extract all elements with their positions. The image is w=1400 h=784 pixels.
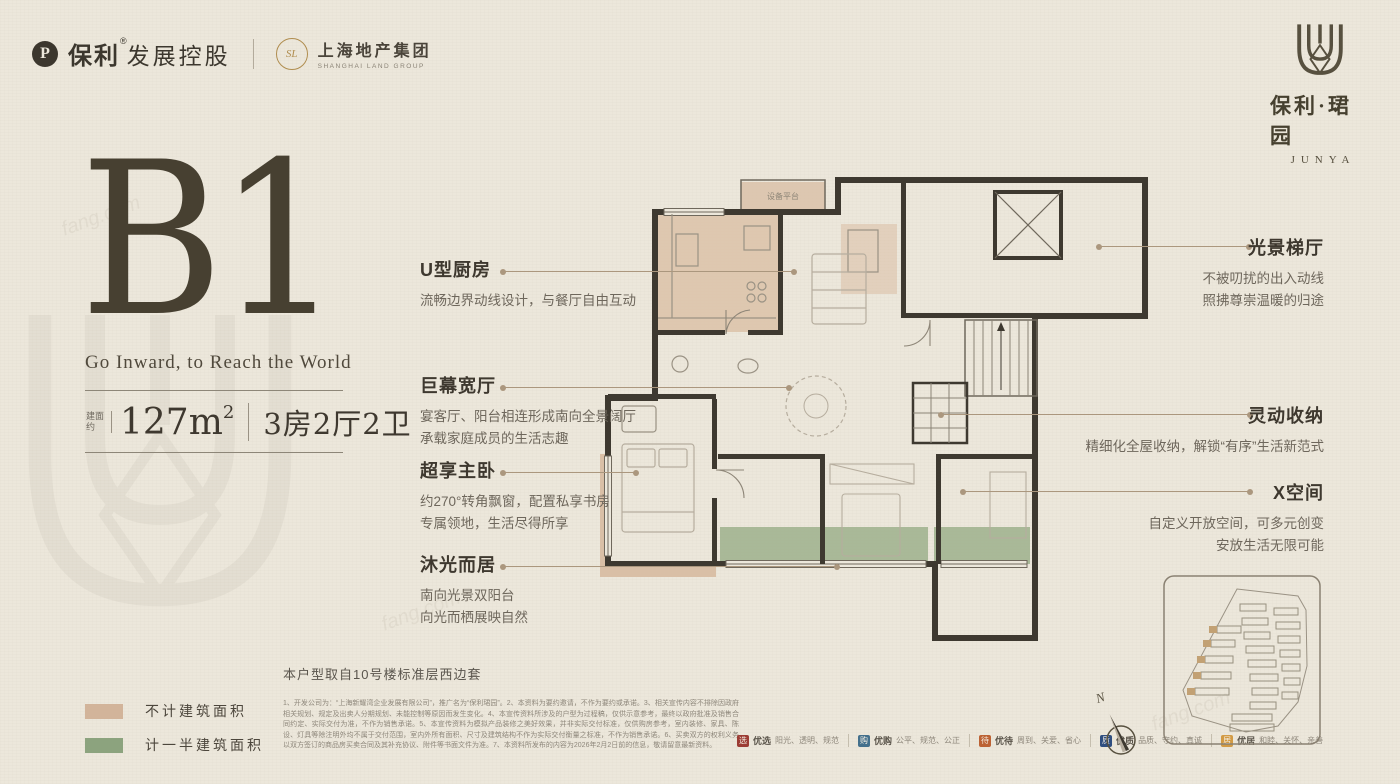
compass-icon	[1094, 704, 1144, 760]
shland-name: 上海地产集团	[318, 37, 432, 61]
annotation-xspace: X空间 自定义开放空间，可多元创变 安放生活无限可能	[1064, 479, 1324, 556]
poly-brand: 保利®发展控股	[68, 36, 231, 71]
annotation-line: 精细化全屋收纳，解锁“有序”生活新范式	[1044, 436, 1324, 458]
legend-swatch	[85, 704, 123, 719]
poly-brand-name: 保利	[68, 44, 120, 70]
annotation-title: X空间	[1064, 479, 1324, 505]
annotation-lobby: 光景梯厅 不被叨扰的出入动线 照拂尊崇温暖的归途	[1064, 234, 1324, 311]
half-area-fills	[720, 527, 1030, 564]
annotation-kitchen: U型厨房 流畅边界动线设计，与餐厅自由互动	[420, 256, 636, 312]
area-superscript: 2	[223, 402, 234, 423]
legend: 不计建筑面积 计一半建筑面积	[85, 701, 264, 769]
brand-monogram-icon	[1294, 22, 1346, 84]
annotation-master: 超享主卧 约270°转角飘窗，配置私享书房 专属领地，生活尽得所享	[420, 457, 610, 534]
poly-logo-icon: P	[32, 41, 58, 67]
badge-name: 优选	[753, 734, 771, 747]
living-area-circle	[786, 376, 846, 436]
leader-line-balcony	[502, 566, 838, 567]
badge-icon: 选	[737, 735, 749, 747]
stairs	[965, 320, 1037, 396]
header-left: P 保利®发展控股 SL 上海地产集团 SHANGHAI LAND GROUP	[32, 36, 432, 71]
annotation-line: 向光而栖展映自然	[420, 607, 528, 629]
legend-label: 不计建筑面积	[145, 701, 247, 721]
badge-desc: 周到、关爱、省心	[1017, 735, 1081, 746]
annotation-line: 不被叨扰的出入动线	[1064, 268, 1324, 290]
area-label: 建面约	[86, 411, 112, 433]
sl-logo-icon: SL	[276, 38, 308, 70]
elevator	[995, 192, 1061, 258]
spec-divider-mid	[248, 403, 249, 441]
site-buildings	[1195, 604, 1300, 731]
annotation-title: 光景梯厅	[1064, 234, 1324, 260]
badge-desc: 阳光、透明、规范	[775, 735, 839, 746]
spec-divider-top	[85, 390, 343, 391]
badge-youdai: 待 优待 周到、关爱、省心	[969, 734, 1081, 747]
badge-name: 优购	[874, 734, 892, 747]
brand-name: 保利·珺园	[1270, 90, 1370, 150]
annotation-line: 自定义开放空间，可多元创变	[1064, 513, 1324, 535]
annotation-title: 超享主卧	[420, 457, 610, 483]
spec-row: 建面约 127m2 3房2厅2卫	[86, 399, 412, 445]
legend-swatch	[85, 738, 123, 753]
shland-sub: SHANGHAI LAND GROUP	[318, 63, 432, 70]
unit-title: B1	[80, 142, 336, 337]
annotation-line: 承载家庭成员的生活志趣	[420, 428, 636, 450]
poly-brand-suffix: 发展控股	[127, 44, 231, 69]
disclaimer: 1、开发公司为：“上海新耀湾企业发展有限公司”，推广名为“保利珺园”。2、本资料…	[283, 699, 739, 752]
poster-stage: fang.com fang.com fang.com P 保利®发展控股 SL …	[0, 0, 1400, 784]
badge-desc: 公平、规范、公正	[896, 735, 960, 746]
shland-brand: 上海地产集团 SHANGHAI LAND GROUP	[318, 37, 432, 70]
annotation-title: 沐光而居	[420, 551, 528, 577]
legend-item-noarea: 不计建筑面积	[85, 701, 264, 721]
annotation-balcony: 沐光而居 南向光景双阳台 向光而栖展映自然	[420, 551, 528, 628]
badge-youxuan: 选 优选 阳光、透明、规范	[737, 734, 839, 747]
layout-value: 3房2厅2卫	[263, 401, 411, 443]
tagline: Go Inward, to Reach the World	[85, 352, 352, 374]
legend-label: 计一半建筑面积	[145, 735, 264, 755]
siteplan-panel	[1162, 574, 1322, 746]
area-value: 127m2	[120, 402, 234, 443]
no-area-fills	[600, 182, 897, 577]
platform-label: 设备平台	[767, 191, 799, 201]
annotation-line: 流畅边界动线设计，与餐厅自由互动	[420, 290, 636, 312]
annotation-title: 灵动收纳	[1044, 402, 1324, 428]
annotation-line: 安放生活无限可能	[1064, 535, 1324, 557]
brand-right: 保利·珺园 JUNYA	[1270, 22, 1370, 166]
annotation-storage: 灵动收纳 精细化全屋收纳，解锁“有序”生活新范式	[1044, 402, 1324, 458]
annotation-line: 宴客厅、阳台相连形成南向全景阔厅	[420, 406, 636, 428]
badge-icon: 待	[979, 735, 991, 747]
badge-yougou: 购 优购 公平、规范、公正	[848, 734, 960, 747]
master-bed	[622, 444, 694, 532]
annotation-line: 专属领地，生活尽得所享	[420, 513, 610, 535]
badge-icon: 购	[858, 735, 870, 747]
footnote: 本户型取自10号楼标准层西边套	[283, 664, 481, 683]
annotation-line: 照拂尊崇温暖的归途	[1064, 290, 1324, 312]
annotation-line: 约270°转角飘窗，配置私享书房	[420, 491, 610, 513]
trademark-symbol: ®	[120, 36, 127, 46]
annotation-line: 南向光景双阳台	[420, 585, 528, 607]
spec-divider-bottom	[85, 452, 343, 453]
site-highlight-units	[1187, 626, 1217, 695]
badge-name: 优待	[995, 734, 1013, 747]
annotation-living: 巨幕宽厅 宴客厅、阳台相连形成南向全景阔厅 承载家庭成员的生活志趣	[420, 372, 636, 449]
brand-sub: JUNYA	[1285, 154, 1356, 166]
annotation-title: U型厨房	[420, 256, 636, 282]
annotation-title: 巨幕宽厅	[420, 372, 636, 398]
header-divider	[253, 39, 254, 69]
legend-item-halfarea: 计一半建筑面积	[85, 735, 264, 755]
